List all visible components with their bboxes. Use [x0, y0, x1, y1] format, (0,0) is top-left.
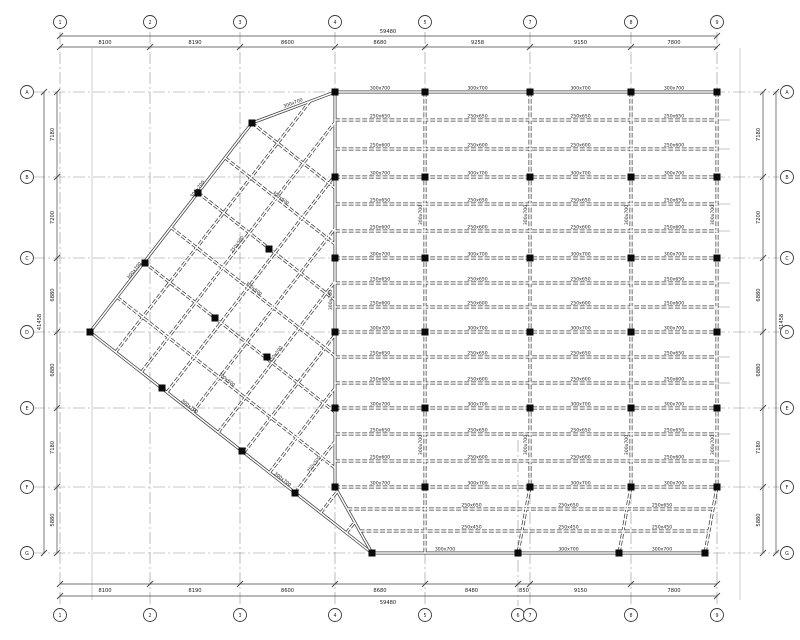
column: [249, 120, 256, 127]
beam-size-label: 250x650: [664, 277, 684, 283]
beam-size-label: 250x600: [370, 377, 390, 383]
dimension-label: 9150: [574, 40, 587, 46]
beam-size-label: 250x650: [370, 428, 390, 434]
axis-bubble-label: 7: [528, 613, 531, 619]
beam-size-label: 300x700: [126, 261, 143, 281]
beam-core: [252, 92, 335, 123]
beam-size-label: 300x700: [467, 326, 487, 332]
beam-core: [144, 262, 335, 412]
column: [527, 484, 534, 491]
beam-core: [518, 487, 530, 553]
column: [628, 174, 635, 181]
column: [628, 89, 635, 96]
beam-size-label: 300x700: [370, 481, 390, 487]
beam-size-label: 300x700: [467, 252, 487, 258]
axis-bubble-label: B: [785, 175, 788, 181]
beam-size-label: 300x700: [370, 86, 390, 92]
dimension-label: 7180: [756, 441, 762, 454]
beam-core: [90, 332, 372, 553]
column: [527, 329, 534, 336]
column: [332, 89, 339, 96]
axis-bubble-label: G: [785, 551, 789, 557]
dimension-label: 6880: [50, 363, 56, 376]
beam-size-label: 300x700: [664, 171, 684, 177]
dimension-label: 6880: [756, 363, 762, 376]
beam-size-label: 250x650: [370, 277, 390, 283]
beam-size-label: 250x600: [664, 301, 684, 307]
axis-bubble-label: 2: [148, 20, 151, 26]
beam-core: [619, 487, 631, 553]
axis-bubble-label: 6: [516, 613, 519, 619]
axis-bubble-label: F: [26, 485, 29, 491]
column: [628, 405, 635, 412]
axis-bubble-label: E: [785, 406, 788, 412]
dimension-label: 8680: [373, 40, 386, 46]
beam-size-label: 300x700: [652, 547, 672, 553]
column: [714, 89, 721, 96]
beam-size-label: 300x700: [570, 402, 590, 408]
dimension-label: 9258: [471, 40, 484, 46]
column: [87, 329, 94, 336]
axis-bubble-label: 1: [58, 613, 61, 619]
dimension-label: 7180: [50, 128, 56, 141]
column: [527, 89, 534, 96]
beam-size-label: 250x650: [664, 351, 684, 357]
beam-size-label: 250x650: [664, 428, 684, 434]
dimension-label: 8190: [188, 588, 201, 594]
beam-size-label: 300x700: [328, 290, 334, 310]
dimension-label: 7800: [667, 40, 680, 46]
beam-size-label: 300x700: [558, 547, 578, 553]
dimension-label: 8100: [98, 40, 111, 46]
axis-bubble-label: 3: [238, 613, 241, 619]
beam-size-label: 300x700: [664, 481, 684, 487]
beam-size-label: 250x650: [570, 428, 590, 434]
beam-size-label: 300x700: [467, 481, 487, 487]
beam-size-label: 300x700: [710, 205, 716, 225]
beam-size-label: 300x700: [570, 86, 590, 92]
dimension-label: 7180: [50, 441, 56, 454]
beam-size-label: 300x600: [217, 371, 236, 388]
beam-size-label: 250x600: [467, 225, 487, 231]
column: [702, 550, 709, 557]
axis-bubble-label: G: [25, 551, 29, 557]
column: [515, 550, 522, 557]
beam-size-label: 300x700: [664, 252, 684, 258]
beam-size-label: 300x700: [710, 435, 716, 455]
beam-size-label: 250x600: [467, 301, 487, 307]
beam-size-label: 300x700: [664, 326, 684, 332]
beam-size-label: 250x600: [370, 301, 390, 307]
axis-bubble-label: 5: [423, 613, 426, 619]
dimension-label: 7800: [667, 588, 680, 594]
column: [422, 255, 429, 262]
beam-size-label: 250x600: [467, 143, 487, 149]
dimension-label: 5880: [756, 513, 762, 526]
column: [332, 329, 339, 336]
beam-size-label: 250x600: [570, 225, 590, 231]
beam-size-label: 250x650: [558, 503, 578, 509]
axis-bubble-label: 9: [715, 20, 718, 26]
column: [266, 246, 273, 253]
column: [332, 174, 339, 181]
beam-size-label: 250x500: [306, 455, 323, 474]
beam-size-label: 250x600: [370, 455, 390, 461]
column: [369, 550, 376, 557]
column: [527, 255, 534, 262]
dimension-label: 9150: [574, 588, 587, 594]
beam-size-label: 250x650: [570, 277, 590, 283]
beam-size-label: 300x700: [273, 471, 293, 488]
beam-size-label: 250x650: [370, 198, 390, 204]
beam-core: [705, 487, 717, 553]
beam-size-label: 250x600: [664, 455, 684, 461]
column: [714, 174, 721, 181]
beam-size-label: 250x650: [467, 198, 487, 204]
beam-size-label: 250x650: [467, 428, 487, 434]
axis-bubble-label: 3: [238, 20, 241, 26]
axis-bubble-label: 9: [715, 613, 718, 619]
axis-bubble-label: 8: [629, 613, 632, 619]
beam-size-label: 300x700: [523, 205, 529, 225]
beam-size-label: 250x600: [570, 377, 590, 383]
beam-size-label: 250x650: [664, 114, 684, 120]
axis-bubble-label: E: [25, 406, 28, 412]
beam-size-label: 250x650: [467, 351, 487, 357]
axis-bubble-label: D: [25, 330, 29, 336]
column: [422, 329, 429, 336]
dimension-label: 8100: [98, 588, 111, 594]
column: [239, 448, 246, 455]
beam-size-label: 250x600: [570, 301, 590, 307]
beam-size-label: 250x650: [467, 114, 487, 120]
column: [332, 405, 339, 412]
dimension-label: 8190: [188, 40, 201, 46]
beam-size-label: 300x700: [370, 171, 390, 177]
beam-size-label: 300x700: [467, 402, 487, 408]
beam-size-label: 250x650: [570, 114, 590, 120]
beam-size-label: 300x700: [418, 205, 424, 225]
beam-size-label: 250x600: [467, 455, 487, 461]
column: [527, 405, 534, 412]
beam-size-label: 300x700: [664, 402, 684, 408]
dimension-label: 8680: [373, 588, 386, 594]
beam-size-label: 250x600: [570, 143, 590, 149]
dimension-total-label: 59480: [380, 600, 397, 606]
axis-bubble-label: 2: [148, 613, 151, 619]
drawing-canvas: 300x700300x700300x700300x700300x700300x7…: [0, 0, 800, 640]
beam-size-label: 250x600: [570, 455, 590, 461]
column: [628, 484, 635, 491]
beam-size-label: 250x500: [229, 235, 246, 254]
axis-bubble-label: 4: [333, 613, 336, 619]
dimension-label: 7180: [756, 128, 762, 141]
dimension-label: 8600: [281, 40, 294, 46]
dimension-label: 5880: [50, 513, 56, 526]
beam-size-label: 300x700: [570, 252, 590, 258]
beam-size-label: 250x600: [370, 143, 390, 149]
beam-size-label: 250x600: [664, 225, 684, 231]
column: [292, 490, 299, 497]
beam-size-label: 300x700: [370, 252, 390, 258]
column: [616, 550, 623, 557]
axis-bubble-label: F: [786, 485, 789, 491]
beam-size-label: 300x700: [664, 86, 684, 92]
dimension-label: 850: [519, 588, 529, 594]
column: [714, 255, 721, 262]
dimension-label: 7200: [50, 211, 56, 224]
dimension-label: 8480: [465, 588, 478, 594]
column: [212, 315, 219, 322]
beam-size-label: 250x650: [664, 198, 684, 204]
column: [628, 255, 635, 262]
beam-size-label: 250x650: [652, 503, 672, 509]
column: [628, 329, 635, 336]
column: [527, 174, 534, 181]
column: [422, 405, 429, 412]
axis-bubble-label: 4: [333, 20, 336, 26]
dimension-label: 6880: [50, 288, 56, 301]
column: [159, 385, 166, 392]
column: [422, 89, 429, 96]
beam-size-label: 250x600: [467, 377, 487, 383]
beam-size-label: 250x600: [664, 377, 684, 383]
dimension-total-label: 59480: [380, 29, 397, 35]
beam-size-label: 300x700: [570, 171, 590, 177]
beam-size-label: 300x700: [467, 86, 487, 92]
beam-size-label: 250x650: [461, 503, 481, 509]
beam-size-label: 250x650: [370, 351, 390, 357]
beam-core: [252, 123, 335, 188]
beam-size-label: 300x700: [467, 171, 487, 177]
beam-size-label: 300x700: [370, 402, 390, 408]
dimension-label: 8600: [281, 588, 294, 594]
beam-size-label: 250x650: [370, 114, 390, 120]
beam-size-label: 300x700: [523, 435, 529, 455]
column: [422, 484, 429, 491]
beam-size-label: 250x450: [461, 525, 481, 531]
beam-size-label: 300x700: [418, 435, 424, 455]
beam-size-label: 250x650: [570, 198, 590, 204]
axis-bubble-label: 1: [58, 20, 61, 26]
beam-core: [346, 522, 354, 533]
column: [714, 484, 721, 491]
beam-size-label: 250x650: [467, 277, 487, 283]
beam-size-label: 250x450: [652, 525, 672, 531]
dimension-total-label: 41458: [37, 314, 43, 331]
column: [422, 174, 429, 181]
beam-size-label: 250x600: [664, 143, 684, 149]
beam-core: [335, 487, 372, 553]
column: [714, 405, 721, 412]
beam-size-label: 250x650: [570, 351, 590, 357]
column: [714, 329, 721, 336]
beam-size-label: 300x700: [624, 205, 630, 225]
beam-size-label: 300x700: [570, 481, 590, 487]
axis-bubble-label: B: [25, 175, 28, 181]
dimension-label: 7200: [756, 211, 762, 224]
beam-size-label: 300x700: [624, 435, 630, 455]
axis-bubble-label: 8: [629, 20, 632, 26]
framing-plan: 300x700300x700300x700300x700300x700300x7…: [0, 0, 800, 640]
beam-size-label: 300x700: [570, 326, 590, 332]
beam-size-label: 250x450: [558, 525, 578, 531]
column: [332, 255, 339, 262]
beam-size-label: 300x700: [370, 326, 390, 332]
axis-bubble-label: D: [785, 330, 789, 336]
beam-size-label: 300x700: [435, 547, 455, 553]
axis-bubble-label: 5: [423, 20, 426, 26]
beam-size-label: 250x600: [370, 225, 390, 231]
column: [332, 484, 339, 491]
dimension-label: 6880: [756, 288, 762, 301]
axis-bubble-label: 7: [528, 20, 531, 26]
